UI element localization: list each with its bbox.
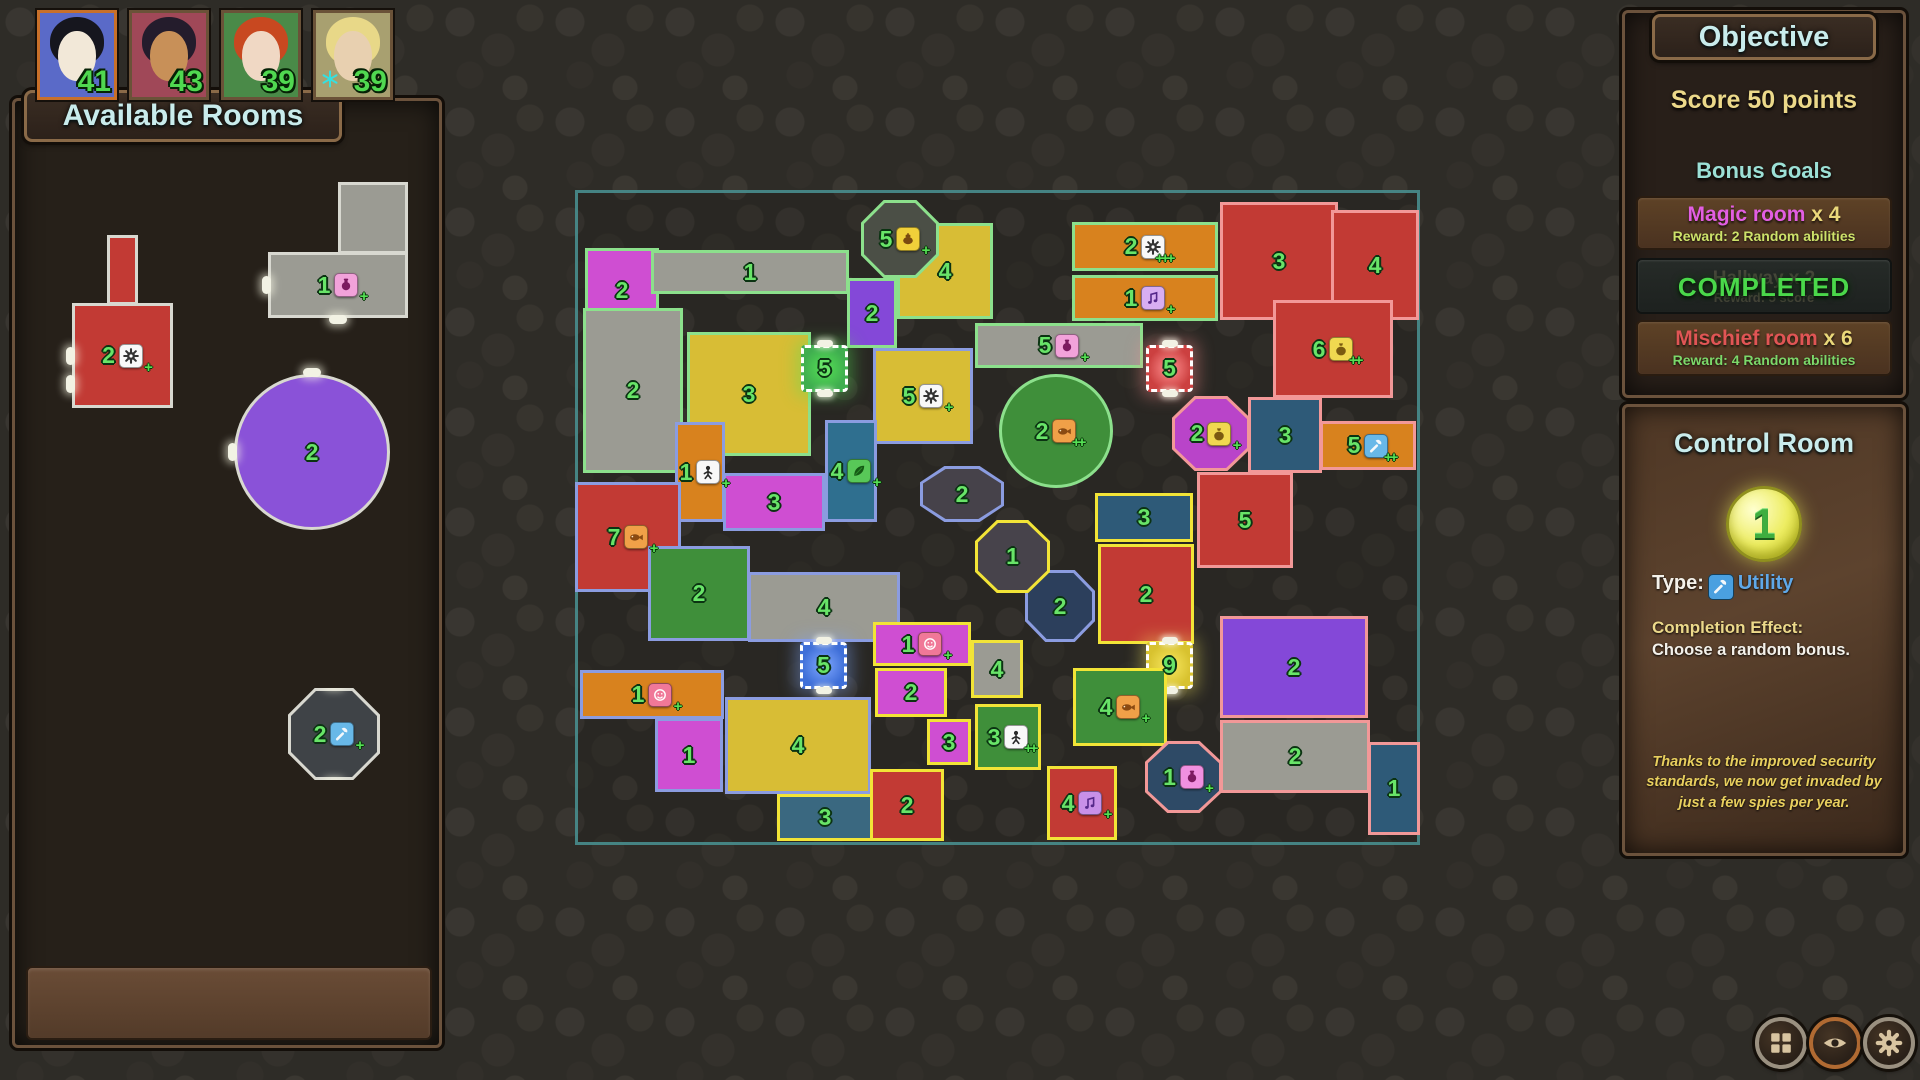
bonus-plus: + [944,647,950,664]
room-level: 4 [991,658,1004,681]
map-room[interactable]: 2 [648,546,750,641]
room-level: 5 [880,228,893,251]
potion-icon: + [1055,334,1079,358]
room-level: 2 [905,681,918,704]
room-level: 2 [956,483,969,506]
map-room[interactable]: 3 [927,719,971,765]
snowflake-icon [320,69,340,89]
map-room[interactable]: 5++ [1320,421,1416,470]
available-room-utility-octagon[interactable]: 2+ [288,688,380,780]
gear-icon: + [119,344,143,368]
bonus-plus: + [144,359,150,376]
bonus-plus: + [945,399,951,416]
bonus-plus: + [356,737,362,754]
eye-icon [1821,1029,1849,1057]
room-level: 2 [693,582,706,605]
door-nub [329,315,347,324]
map-room[interactable]: 5 [800,642,847,689]
moneybag-icon [1211,426,1227,442]
map-room[interactable]: 1+ [1145,741,1222,813]
wrench-icon [334,726,350,742]
settings-button[interactable] [1863,1017,1915,1069]
map-room[interactable]: 5 [1146,345,1193,392]
leaf-icon [851,463,867,479]
map-room[interactable]: 1 [651,250,849,294]
room-level: 1 [318,274,331,297]
room-level: 3 [943,731,956,754]
player-score: 39 [354,67,387,97]
room-level: 6 [1313,338,1326,361]
control-room-title-wrap: Control Room [1622,428,1906,459]
map-room[interactable]: 2 [847,278,897,348]
room-level: 5 [818,357,831,380]
available-rooms-title: Available Rooms [63,99,304,133]
bonus-plus: +++ [1155,250,1172,267]
moneybag-icon [1333,341,1349,357]
map-room[interactable]: 1 [975,520,1050,593]
wrench-icon: ++ [1364,434,1388,458]
potion-icon: + [334,273,358,297]
player-score: 39 [262,67,295,97]
smiley-icon: + [648,683,672,707]
sidebar-footer [26,966,432,1040]
room-level: 2 [1191,422,1204,445]
room-level: 2 [627,379,640,402]
map-room[interactable]: 3 [1248,397,1322,473]
room-level: 1 [683,744,696,767]
layout-button[interactable] [1755,1017,1807,1069]
map-room[interactable]: 1+ [580,670,724,719]
room-level: 5 [1039,334,1052,357]
room-level: 2 [901,794,914,817]
map-room[interactable]: 3 [723,473,825,531]
bonus-plus: + [922,242,928,259]
moneybag-icon: ++ [1329,337,1353,361]
wrench-icon [1712,578,1729,595]
fish-icon [1056,423,1072,439]
bonus-plus: + [1167,301,1173,318]
room-level: 1 [632,683,645,706]
map-room[interactable]: 2+ [1172,396,1250,471]
room-level: 3 [819,806,832,829]
map-room[interactable]: 2++ [999,374,1113,488]
bonus-goals-header: Bonus Goals [1622,158,1906,184]
fish-icon: ++ [1052,419,1076,443]
control-room-title: Control Room [1674,428,1854,458]
room-level: 3 [1138,506,1151,529]
room-level: 2 [1054,595,1067,618]
goal-reward: Reward: 2 Random abilities [1642,228,1886,244]
room-level: 2 [1125,235,1138,258]
person-icon: + [696,460,720,484]
room-level: 2 [1140,583,1153,606]
bonus-plus: + [1104,806,1110,823]
available-room-gray-hall-part[interactable] [338,182,408,254]
bonus-plus: + [1233,437,1239,454]
room-level: 9 [1163,654,1176,677]
map-room[interactable]: 1+ [675,422,725,522]
room-level: 2 [616,279,629,302]
type-label: Type: [1652,572,1704,594]
leaf-icon: + [847,459,871,483]
map-room[interactable]: 5+ [873,348,973,444]
fish-icon [1120,699,1136,715]
door-nub [228,443,237,461]
map-room[interactable]: 4 [725,697,871,794]
main-goal: Score 50 points [1622,86,1906,115]
gear-icon [123,348,139,364]
map-room[interactable]: 3 [777,794,873,841]
bonus-plus: + [873,474,879,491]
room-level: 3 [743,383,756,406]
room-level: 2 [102,344,115,367]
map-room[interactable]: 4+ [1073,668,1167,746]
room-level: 3 [1279,424,1292,447]
potion-icon [1184,769,1200,785]
room-level: 1 [1006,545,1019,568]
map-room[interactable]: 3++ [975,704,1041,770]
room-level: 2 [1036,420,1049,443]
player-score: 43 [170,67,203,97]
flavor-text: Thanks to the improved security standard… [1642,752,1886,813]
map-room[interactable]: 5 [801,345,848,392]
room-level: 5 [1348,434,1361,457]
moneybag-icon: + [1207,422,1231,446]
goal-reward: Reward: 4 Random abilities [1642,352,1886,368]
room-level: 2 [306,441,319,464]
map-room[interactable]: 1+ [873,622,971,666]
grid-icon [1767,1029,1795,1057]
room-level: 4 [1369,254,1382,277]
potion-icon [338,277,354,293]
gear-tan-icon [1875,1029,1903,1057]
music-note-icon [1145,290,1161,306]
map-room[interactable]: 2 [583,308,683,473]
room-level: 7 [608,526,621,549]
map-room[interactable]: 5 [1197,472,1293,568]
room-level: 4 [939,260,952,283]
available-room-purple-lounge[interactable]: 2 [234,374,390,530]
objective-title-plate: Objective [1652,14,1876,60]
effect-text: Choose a random bonus. [1652,641,1882,660]
goal-completed-label: COMPLETED [1642,265,1886,309]
bonus-goal-1: Magic room x 4Reward: 2 Random abilities [1636,196,1892,250]
map-room[interactable]: 2 [1220,616,1368,718]
potion-icon [1059,338,1075,354]
room-level: 2 [866,302,879,325]
map-room[interactable]: 5+ [975,323,1143,368]
map-room[interactable]: 1 [1368,742,1420,835]
bonus-plus: + [674,698,680,715]
door-nub [66,347,75,365]
music-note-icon: + [1141,286,1165,310]
available-room-gray-hall[interactable]: 1+ [268,252,408,318]
door-nub [66,375,75,393]
type-row: Type:Utility [1652,572,1882,600]
wrench-icon: + [330,722,354,746]
bonus-goal-2: Hallway x 2Reward: 5 scoreCOMPLETED [1636,258,1892,314]
room-level: 2 [1289,745,1302,768]
map-room[interactable]: 3 [1095,493,1193,542]
effect-label: Completion Effect: [1652,618,1882,638]
room-level: 3 [988,726,1001,749]
player-3-portrait[interactable]: 39 [221,10,301,100]
fish-icon [628,529,644,545]
room-level: 5 [1163,357,1176,380]
map-room[interactable]: 2+++ [1072,222,1218,271]
bonus-plus: + [722,475,728,492]
map-room[interactable]: 6++ [1273,300,1393,398]
smiley-icon: + [918,632,942,656]
map-room[interactable]: 2 [875,668,947,717]
room-level: 1 [1125,287,1138,310]
bonus-plus: ++ [1384,449,1396,466]
map-room[interactable]: 4+ [1047,766,1117,840]
door-nub [262,276,271,294]
objective-title: Objective [1699,21,1830,54]
room-level: 3 [1273,250,1286,273]
available-room-red-gear[interactable]: 2+ [72,303,173,408]
map-room[interactable]: 2 [1220,720,1370,793]
smiley-icon [652,687,668,703]
player-4-portrait[interactable]: 39 [313,10,393,100]
map-room[interactable]: 4 [971,640,1023,698]
player-2-portrait[interactable]: 43 [129,10,209,100]
room-level: 2 [1288,656,1301,679]
music-note-icon [1082,795,1098,811]
goal-label: Mischief room x 6 [1642,327,1886,351]
door-nub [303,368,321,377]
magic-lamp-icon: + [896,227,920,251]
person-icon: ++ [1004,725,1028,749]
bonus-plus: ++ [1024,740,1036,757]
person-icon [1008,729,1024,745]
map-room[interactable]: 1 [655,718,723,792]
bonus-plus: ++ [1349,352,1361,369]
map-room[interactable]: 5+ [861,200,939,278]
room-level: 5 [817,654,830,677]
map-room[interactable]: 2 [1098,544,1194,644]
room-level: 4 [1062,792,1075,815]
gear-icon: + [919,384,943,408]
bonus-plus: + [1205,780,1211,797]
snowflake-icon [320,69,340,89]
room-level: 4 [1100,696,1113,719]
room-level: 2 [314,723,327,746]
bonus-plus: + [360,288,366,305]
map-room[interactable]: 2 [920,466,1004,522]
room-level: 5 [1239,509,1252,532]
magic-lamp-icon [900,231,916,247]
map-room[interactable]: 1+ [1072,275,1218,321]
room-value: 1 [1752,500,1775,548]
bonus-plus: + [650,540,656,557]
potion-icon: + [1180,765,1204,789]
smiley-icon [922,636,938,652]
room-level: 1 [1388,777,1401,800]
wrench-icon [1708,574,1734,600]
map-room[interactable]: 2 [870,769,944,841]
bonus-goal-3: Mischief room x 6Reward: 4 Random abilit… [1636,320,1892,376]
room-level: 1 [1163,766,1176,789]
music-note-icon: + [1078,791,1102,815]
room-level: 4 [818,596,831,619]
bonus-plus: + [1081,349,1087,366]
player-score: 41 [78,67,111,97]
gear-icon: +++ [1141,235,1165,259]
room-level: 1 [902,633,915,656]
fish-icon: + [624,525,648,549]
bonus-plus: + [1142,710,1148,727]
gear-icon [923,388,939,404]
room-level: 4 [831,460,844,483]
room-value-orb: 1 [1726,486,1802,562]
person-icon [700,464,716,480]
room-level: 1 [744,261,757,284]
room-level: 3 [768,491,781,514]
visibility-button[interactable] [1809,1017,1861,1069]
room-level: 4 [792,734,805,757]
wrench-icon [1368,438,1384,454]
fish-icon: + [1116,695,1140,719]
player-1-portrait[interactable]: 41 [37,10,117,100]
map-room[interactable]: 4+ [825,420,877,522]
type-value: Utility [1738,572,1794,594]
goal-label: Magic room x 4 [1642,203,1886,227]
room-level: 5 [903,385,916,408]
available-room-red-gear-part[interactable] [107,235,138,305]
bonus-plus: ++ [1072,434,1084,451]
room-level: 1 [680,461,693,484]
